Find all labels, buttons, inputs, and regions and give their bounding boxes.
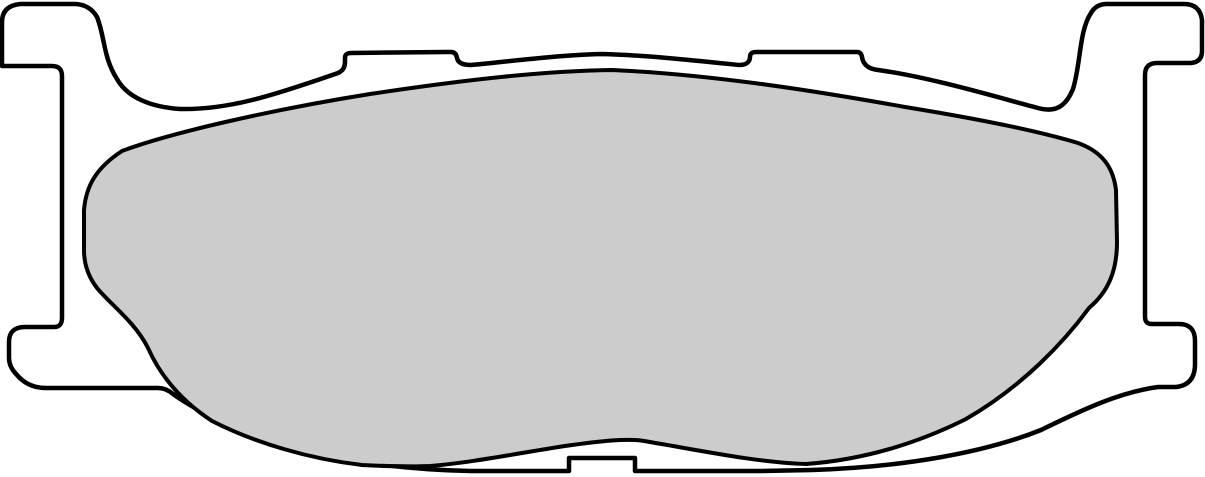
- brake-pad-diagram: [0, 0, 1205, 477]
- brake-pad-drawing-canvas: [0, 0, 1205, 477]
- friction-material-pad: [84, 70, 1117, 466]
